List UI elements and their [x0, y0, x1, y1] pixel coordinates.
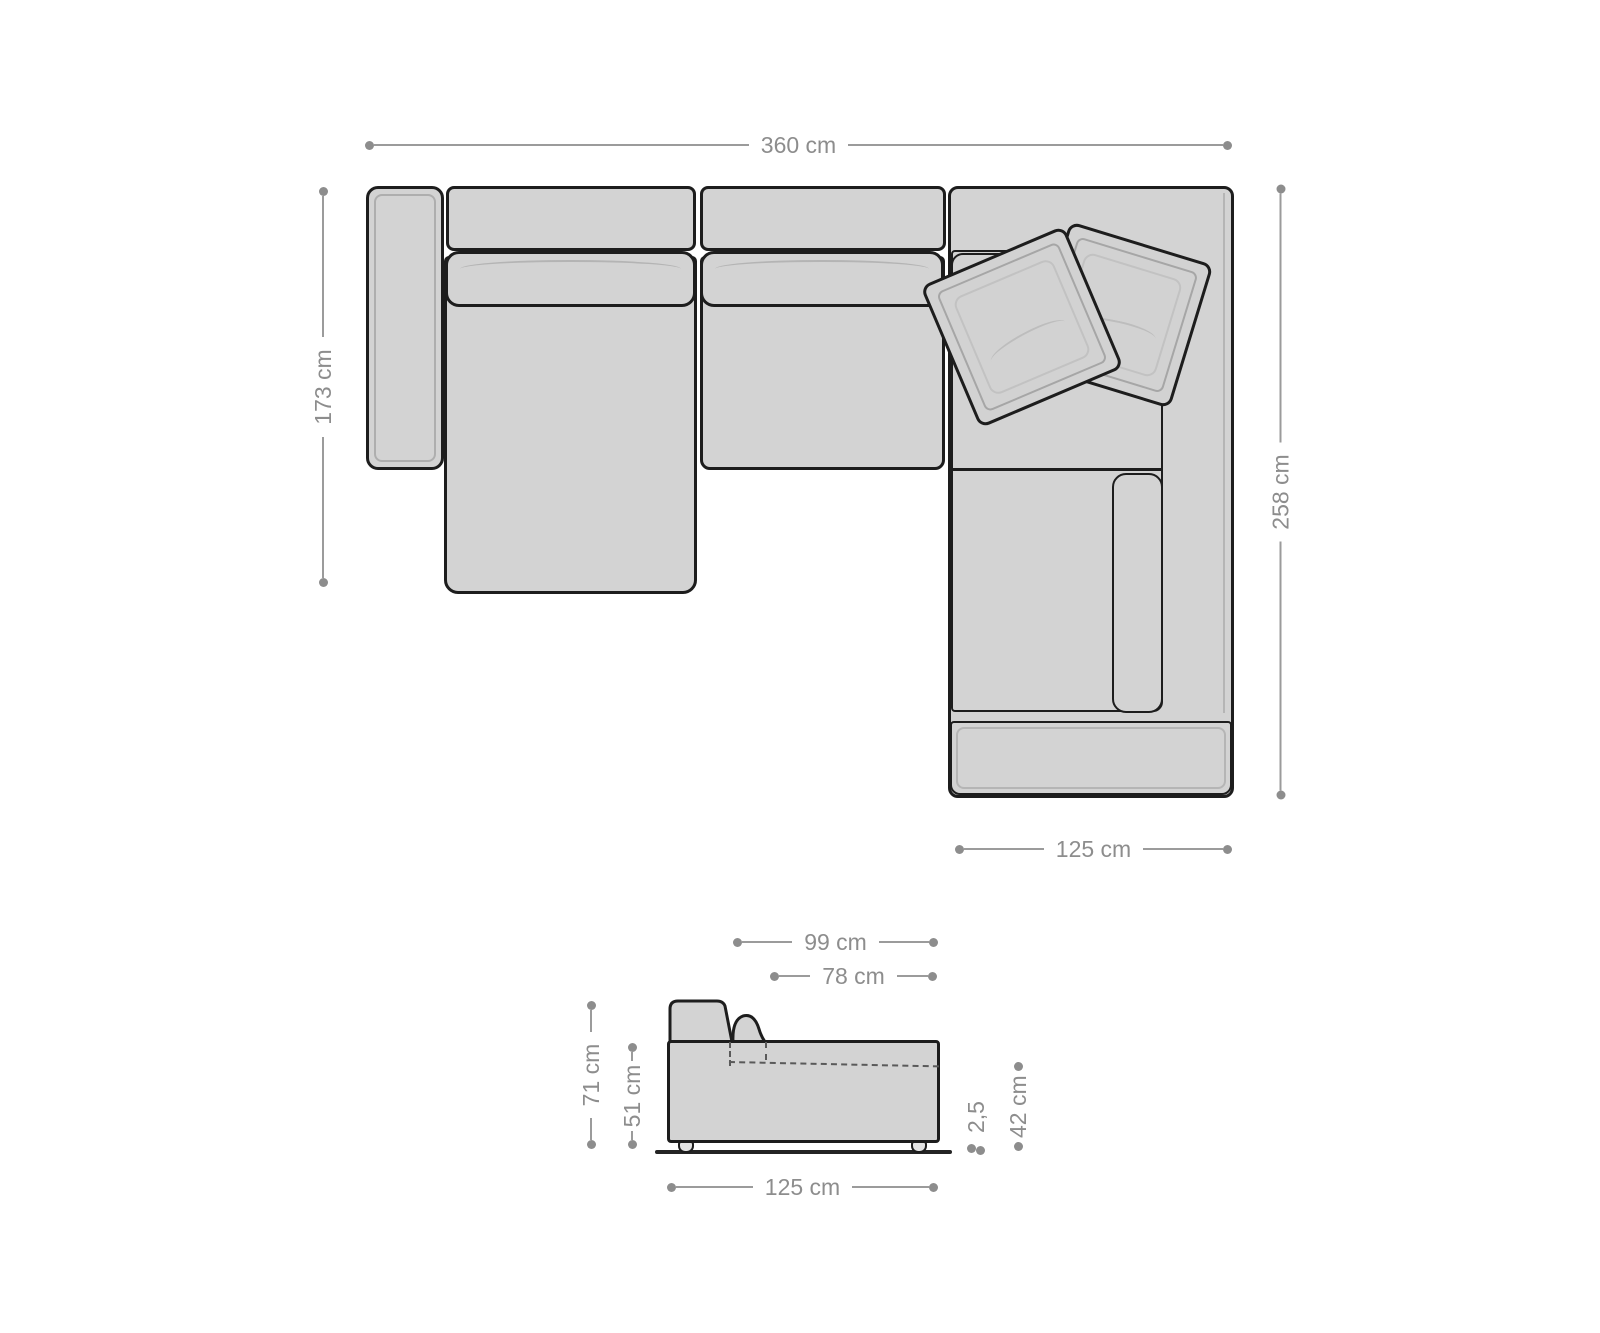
dim-floor-clearance: 2,5 — [971, 1082, 981, 1152]
dim-label: 360 cm — [749, 134, 848, 157]
dim-line — [879, 941, 929, 943]
dim-endpoint-dot — [1223, 845, 1232, 854]
armrest-left — [366, 186, 444, 470]
dim-line — [1280, 542, 1282, 791]
backrest-section-1 — [446, 186, 696, 251]
dim-label: 78 cm — [810, 965, 897, 988]
dim-line — [322, 196, 324, 337]
corner-band-stitch-line — [1223, 193, 1225, 713]
dim-label: 258 cm — [1269, 442, 1292, 541]
hidden-edge-dashed-line — [765, 1042, 767, 1060]
dim-line — [631, 1131, 633, 1140]
dim-endpoint-dot — [928, 972, 937, 981]
dim-endpoint-dot — [319, 578, 328, 587]
dim-side-seat-depth: 78 cm — [770, 971, 937, 981]
dim-endpoint-dot — [967, 1144, 976, 1153]
dim-endpoint-dot — [1014, 1062, 1023, 1071]
dim-label: 125 cm — [1044, 838, 1143, 861]
dim-side-total-depth: 99 cm — [733, 937, 938, 947]
dim-line — [1280, 194, 1282, 443]
dim-left-depth: 173 cm — [318, 187, 328, 587]
dim-endpoint-dot — [976, 1146, 985, 1155]
dim-side-arm-height: 51 cm — [627, 1043, 637, 1149]
dim-endpoint-dot — [733, 938, 742, 947]
dim-endpoint-dot — [628, 1043, 637, 1052]
dim-endpoint-dot — [365, 141, 374, 150]
dim-label: 51 cm — [621, 1061, 644, 1132]
dim-line — [374, 144, 749, 146]
sofa-dimension-diagram: 360 cm 173 cm 258 cm 125 cm — [0, 0, 1600, 1333]
dim-line — [852, 1186, 929, 1188]
dim-side-width: 125 cm — [667, 1182, 938, 1192]
dim-right-depth: 258 cm — [1276, 185, 1286, 800]
dim-endpoint-dot — [628, 1140, 637, 1149]
dim-label: 71 cm — [580, 1032, 603, 1119]
side-arm-pillow — [733, 1016, 765, 1042]
dim-line — [897, 975, 928, 977]
dim-endpoint-dot — [955, 845, 964, 854]
dim-label: 173 cm — [312, 337, 335, 436]
dim-total-width: 360 cm — [365, 140, 1232, 150]
dim-endpoint-dot — [929, 938, 938, 947]
dim-line — [742, 941, 792, 943]
dim-line — [631, 1052, 633, 1061]
armrest-stitch-line — [374, 194, 436, 462]
corner-side-cushion — [1112, 473, 1163, 713]
seat-cushion-2 — [700, 251, 944, 307]
dim-endpoint-dot — [1276, 791, 1285, 800]
side-backrest-shape — [664, 996, 774, 1044]
sofa-side-body — [667, 1040, 940, 1143]
dim-endpoint-dot — [770, 972, 779, 981]
dim-endpoint-dot — [929, 1183, 938, 1192]
dim-label: 99 cm — [792, 931, 879, 954]
dim-label: 2,5 — [965, 1089, 988, 1145]
backrest-section-2 — [700, 186, 946, 251]
dim-line — [848, 144, 1223, 146]
dim-corner-width: 125 cm — [955, 844, 1232, 854]
dim-line — [676, 1186, 753, 1188]
dim-label: 42 cm — [1007, 1071, 1030, 1142]
corner-armrest — [950, 721, 1232, 795]
dim-side-back-height: 71 cm — [586, 1001, 596, 1149]
dim-endpoint-dot — [667, 1183, 676, 1192]
dim-endpoint-dot — [319, 187, 328, 196]
dim-endpoint-dot — [1223, 141, 1232, 150]
dim-endpoint-dot — [1014, 1142, 1023, 1151]
armrest-stitch-line — [956, 727, 1226, 789]
dim-line — [779, 975, 810, 977]
dim-endpoint-dot — [587, 1140, 596, 1149]
dim-endpoint-dot — [587, 1001, 596, 1010]
cushion-crease-line — [715, 260, 929, 278]
dim-endpoint-dot — [1276, 185, 1285, 194]
dim-line — [322, 437, 324, 578]
dim-line — [590, 1118, 592, 1140]
dim-line — [964, 848, 1044, 850]
dim-side-seat-height: 42 cm — [1013, 1067, 1023, 1151]
dim-label: 125 cm — [753, 1176, 852, 1199]
ground-line — [655, 1150, 952, 1154]
corner-seat-divider — [953, 468, 1161, 471]
dim-line — [590, 1010, 592, 1032]
seat-cushion-1 — [445, 251, 696, 307]
side-back-cushion — [670, 1001, 732, 1042]
dim-line — [1143, 848, 1223, 850]
cushion-crease-line — [460, 260, 681, 278]
